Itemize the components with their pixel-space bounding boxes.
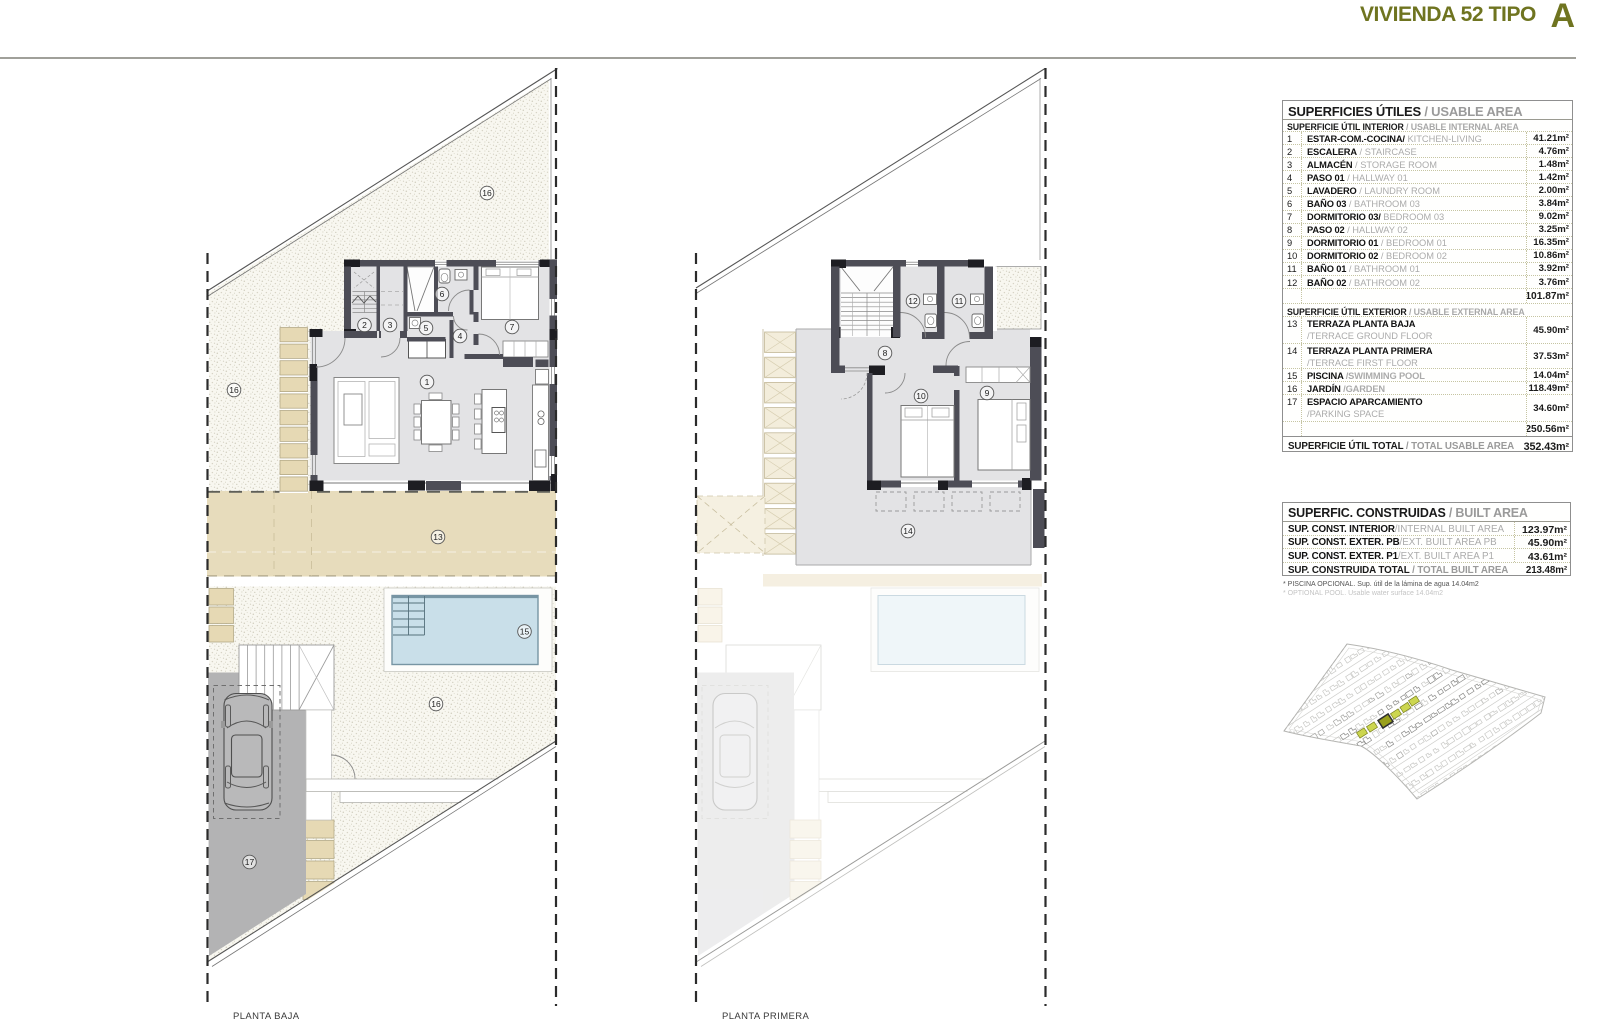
svg-text:12: 12	[908, 296, 918, 306]
svg-text:11: 11	[955, 296, 964, 306]
svg-text:17: 17	[245, 857, 255, 867]
svg-text:1: 1	[425, 377, 430, 387]
svg-text:7: 7	[510, 322, 515, 332]
svg-text:4: 4	[458, 331, 463, 341]
svg-text:5: 5	[424, 323, 429, 333]
svg-text:16: 16	[229, 385, 239, 395]
svg-text:6: 6	[440, 289, 445, 299]
svg-text:15: 15	[520, 627, 530, 637]
svg-text:16: 16	[431, 699, 441, 709]
svg-text:2: 2	[362, 320, 367, 330]
svg-text:8: 8	[883, 348, 888, 358]
svg-text:16: 16	[482, 188, 492, 198]
svg-text:13: 13	[433, 532, 443, 542]
svg-text:14: 14	[903, 526, 913, 536]
svg-text:10: 10	[916, 391, 926, 401]
svg-text:3: 3	[388, 320, 393, 330]
svg-text:9: 9	[985, 388, 990, 398]
